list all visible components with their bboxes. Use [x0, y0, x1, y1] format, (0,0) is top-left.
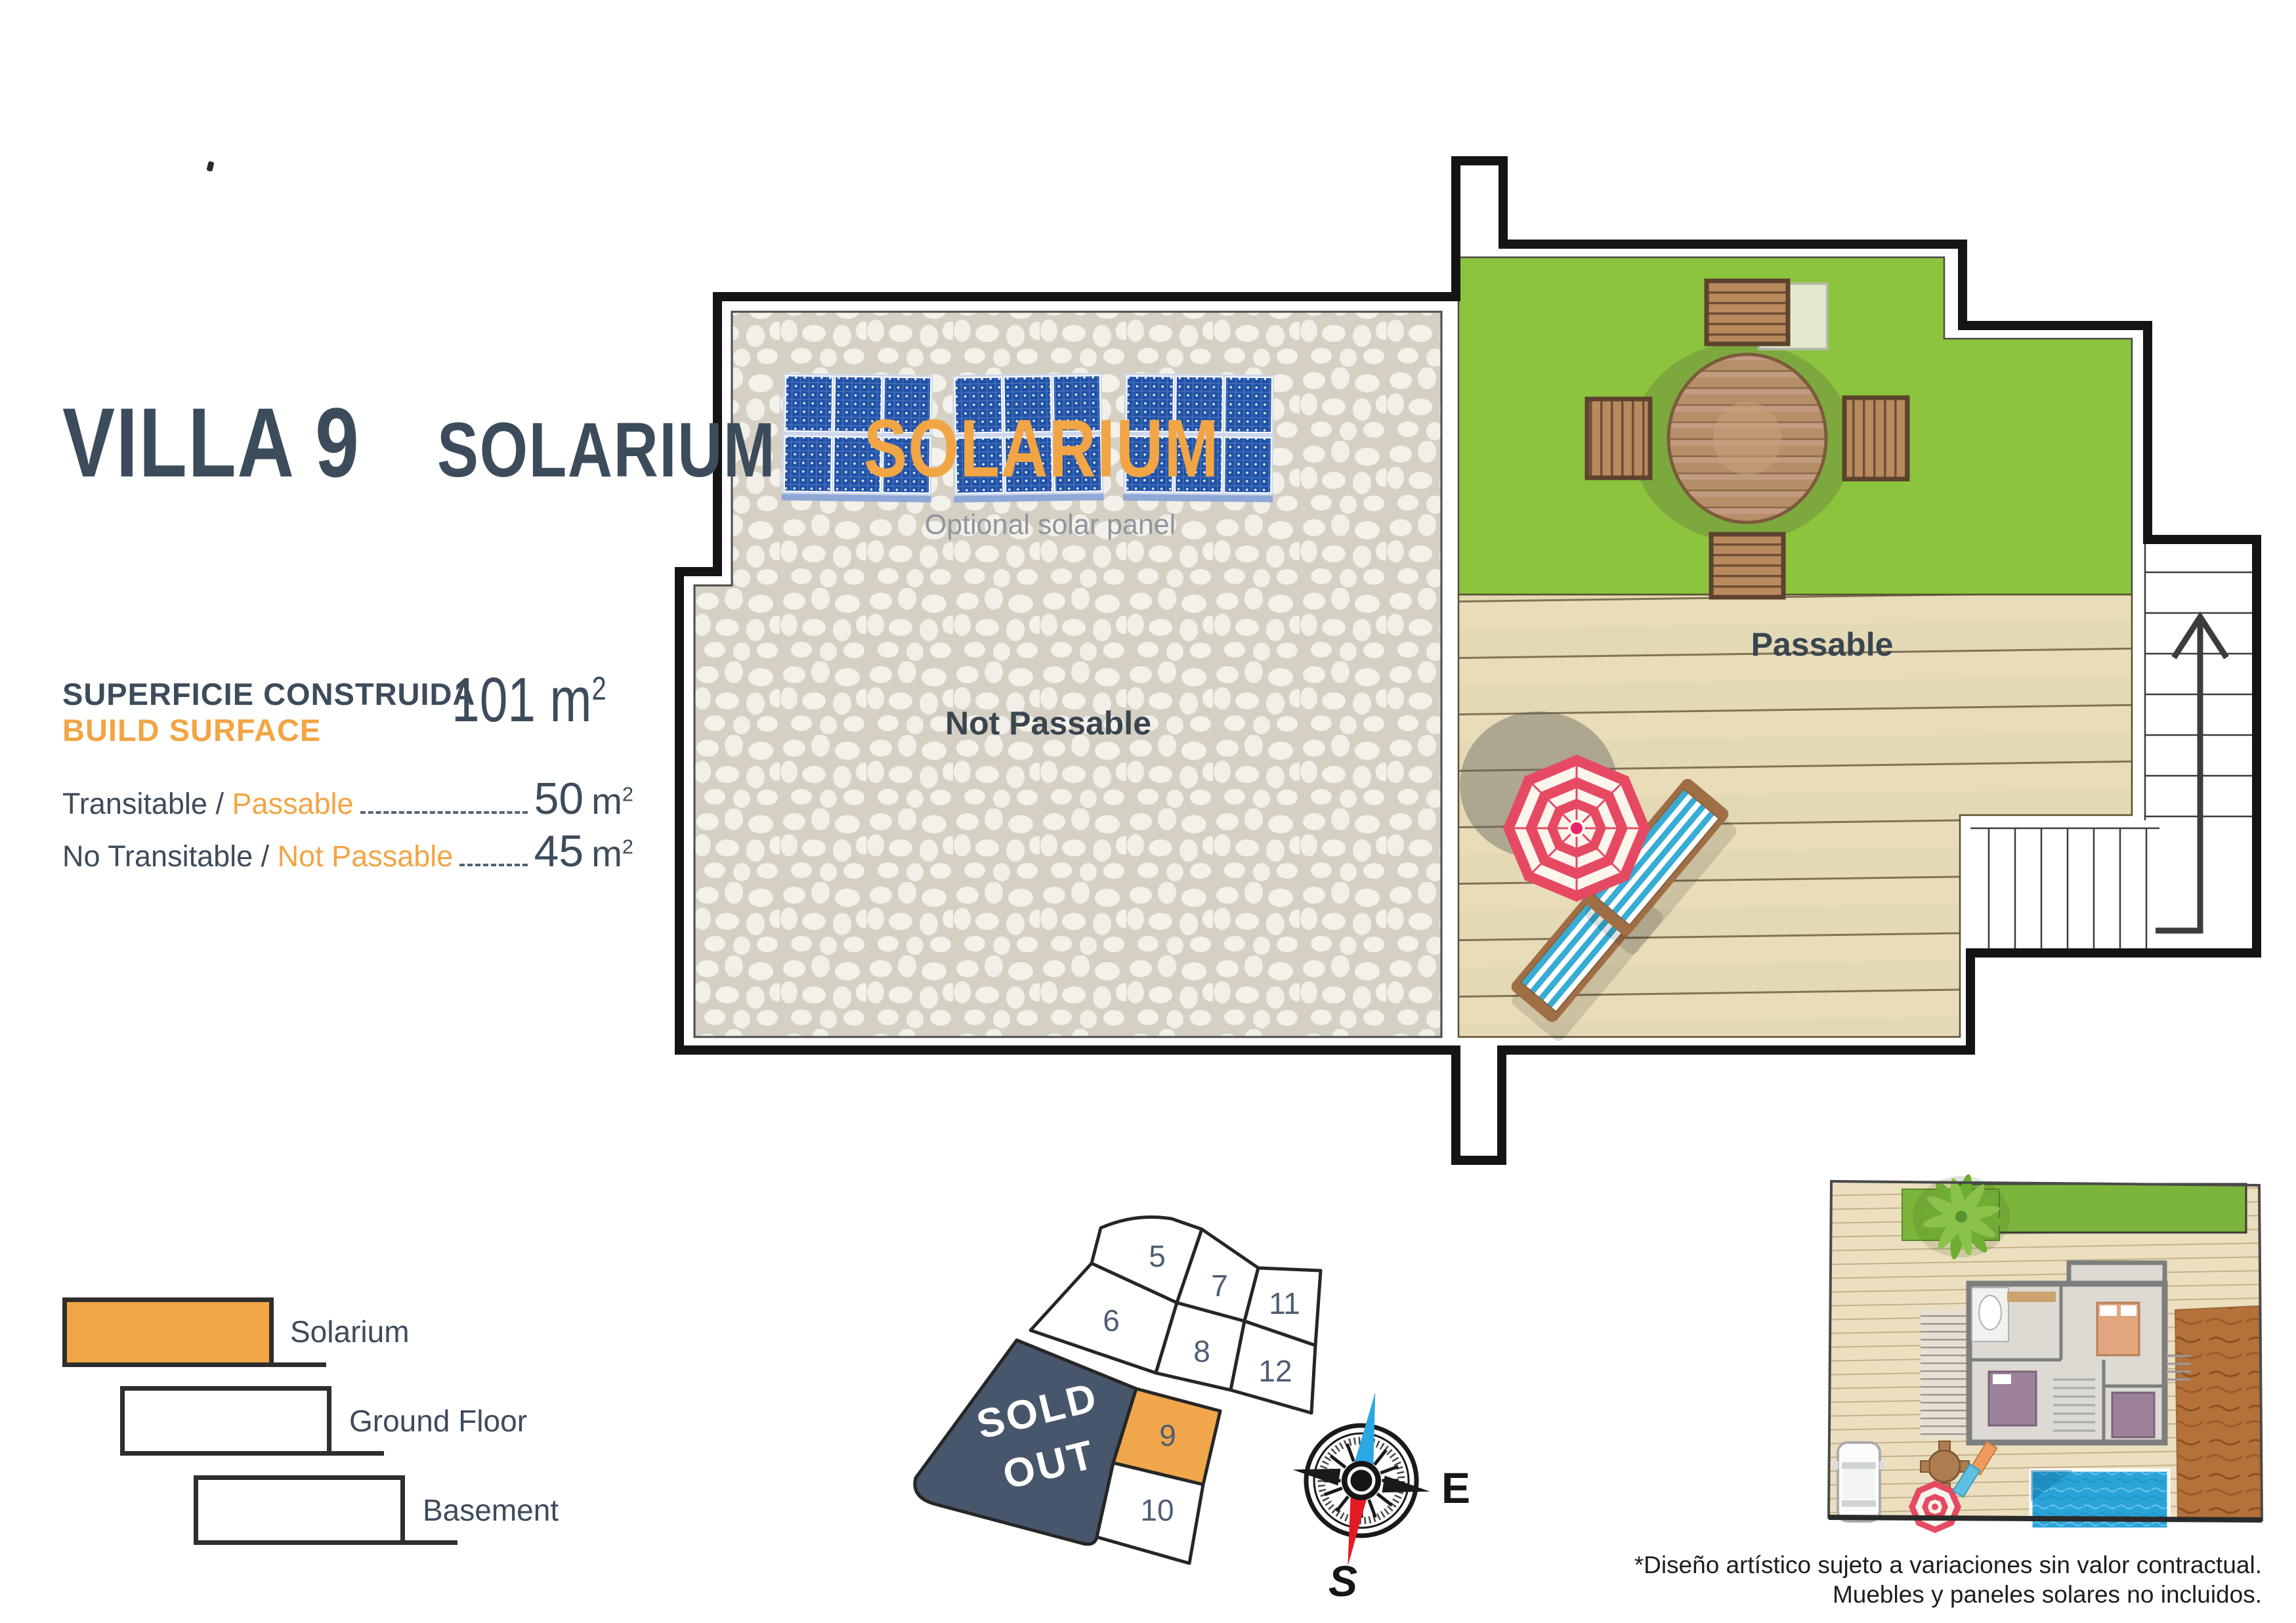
page-title: VILLA 9 [62, 396, 360, 490]
legend-swatch-solarium [62, 1297, 274, 1367]
compass-east-label: E [1441, 1464, 1470, 1512]
metric-unit: m2 [591, 832, 633, 875]
lot-number: 8 [1193, 1334, 1210, 1368]
lot-number: 7 [1211, 1269, 1228, 1303]
surface-labels: SUPERFICIE CONSTRUIDA BUILD SURFACE [62, 676, 475, 748]
solarium-plan [679, 161, 2257, 1160]
dotted-leader [360, 811, 528, 814]
brochure-page: 5 7 11 6 8 12 9 10 SOLD OUT [0, 0, 2296, 1623]
legend-swatch-ground-floor [120, 1386, 331, 1456]
surface-unit-sup: 2 [591, 670, 606, 707]
metric-not-passable: No Transitable / Not Passable 45 m2 [62, 826, 633, 877]
subtitle-accent: SOLARIUM [864, 411, 1220, 488]
legend-underline [120, 1451, 384, 1456]
lot-number: 6 [1103, 1303, 1120, 1338]
dotted-leader [459, 863, 527, 866]
disclaimer-line-1: *Diseño artístico sujeto a variaciones s… [1634, 1550, 2262, 1580]
legend-swatch-basement [194, 1475, 405, 1545]
legend-label-ground-floor: Ground Floor [349, 1403, 527, 1439]
metric-passable: Transitable / Passable 50 m2 [62, 773, 633, 824]
info-panel: VILLA 9 SOLARIUM SOLARIUM [62, 375, 1308, 490]
metric-value: 45 [534, 826, 584, 877]
passable-label: Passable [1751, 625, 1894, 664]
metric-label-accent: Not Passable [278, 839, 454, 874]
lot-number: 9 [1159, 1418, 1176, 1452]
stairs-up-arrow-icon [2156, 617, 2226, 931]
surface-value: 101 m2 [452, 664, 645, 736]
not-passable-label: Not Passable [945, 704, 1151, 742]
surface-number: 101 [452, 665, 536, 735]
mini-dirt-area [2175, 1306, 2262, 1519]
metric-label-accent: Passable [232, 787, 353, 821]
lot-number: 11 [1269, 1286, 1300, 1320]
disclaimer: *Diseño artístico sujeto a variaciones s… [1634, 1550, 2262, 1609]
metric-unit: m2 [591, 780, 633, 822]
surface-label-en: BUILD SURFACE [62, 712, 475, 748]
legend-underline [194, 1540, 457, 1545]
metric-label-dark: Transitable / [62, 787, 232, 821]
optional-solar-panel-label: Optional solar panel [925, 509, 1176, 541]
umbrella-icon [1503, 755, 1650, 902]
metric-value: 50 [534, 773, 584, 824]
legend-underline [62, 1362, 326, 1367]
subtitle-primary: SOLARIUM [437, 413, 776, 487]
lot-number: 12 [1258, 1354, 1292, 1388]
mini-pergola [1921, 1310, 1969, 1439]
surface-label-es: SUPERFICIE CONSTRUIDA [62, 676, 475, 712]
stairs-horizontal-flight [1970, 828, 2159, 950]
mini-house [1969, 1263, 2191, 1443]
disclaimer-line-2: Muebles y paneles solares no incluidos. [1634, 1580, 2262, 1609]
lot-number: 5 [1149, 1239, 1166, 1273]
metric-label-dark: No Transitable / [62, 839, 278, 874]
legend-label-basement: Basement [423, 1492, 559, 1528]
mini-plot-bottom-wall [1829, 1517, 2262, 1520]
legend-label-solarium: Solarium [290, 1314, 410, 1349]
surface-unit: m [549, 665, 591, 735]
mini-umbrella-icon [1909, 1481, 1961, 1533]
compass-south-label: S [1329, 1557, 1357, 1605]
lot-map [915, 1217, 1321, 1563]
compass-icon: E S [1279, 1381, 1470, 1605]
mini-site-plan [1829, 1173, 2262, 1533]
mini-car-icon [1833, 1443, 1884, 1521]
lot-number: 10 [1140, 1493, 1174, 1527]
